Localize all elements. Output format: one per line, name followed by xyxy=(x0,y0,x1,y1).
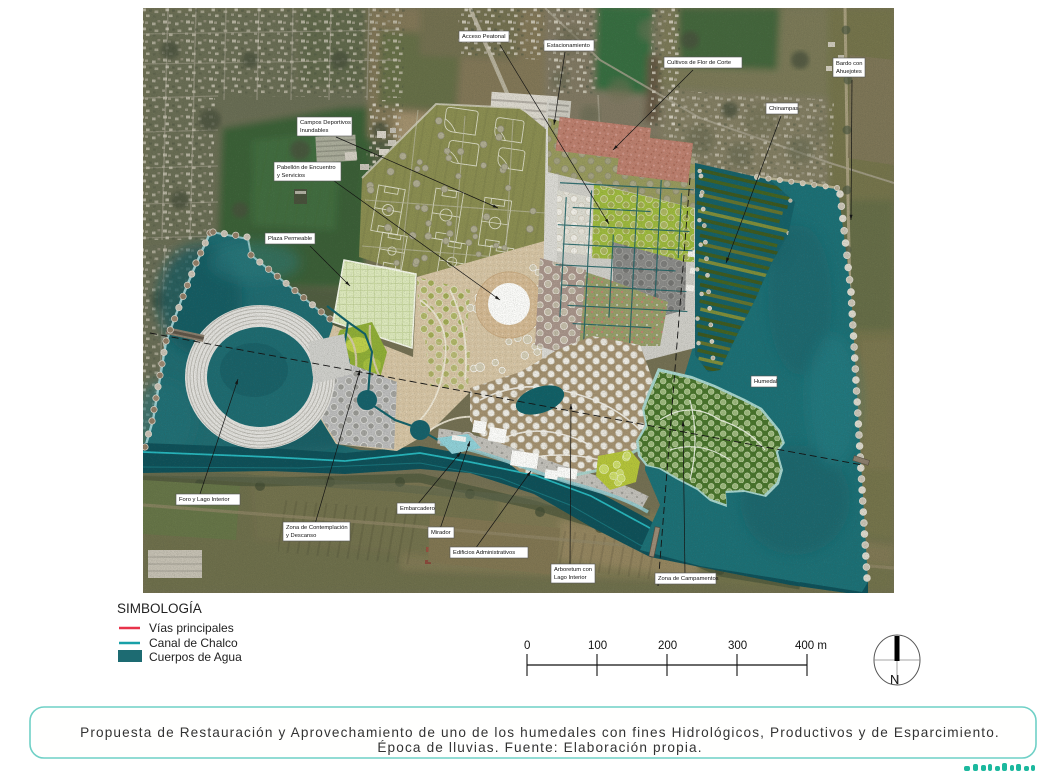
svg-text:Cultivos de Flor de Corte: Cultivos de Flor de Corte xyxy=(667,60,731,66)
svg-text:Edificios Administrativos: Edificios Administrativos xyxy=(453,550,515,556)
svg-text:Humedal: Humedal xyxy=(754,379,777,385)
svg-text:Chinampas: Chinampas xyxy=(769,106,798,112)
svg-text:Campos Deportivos: Campos Deportivos xyxy=(300,120,351,126)
svg-text:Lago Interior: Lago Interior xyxy=(554,575,587,581)
svg-text:Arboretum con: Arboretum con xyxy=(554,567,592,573)
svg-text:200: 200 xyxy=(658,640,677,652)
svg-text:100: 100 xyxy=(588,640,607,652)
svg-text:Zona de Contemplación: Zona de Contemplación xyxy=(286,525,348,531)
svg-text:Inundables: Inundables xyxy=(300,128,328,134)
svg-text:Estacionamiento: Estacionamiento xyxy=(547,43,590,49)
svg-text:SIMBOLOGÍA: SIMBOLOGÍA xyxy=(117,601,202,616)
svg-text:Zona de Campamentos: Zona de Campamentos xyxy=(658,576,719,582)
svg-text:Mirador: Mirador xyxy=(431,530,451,536)
svg-text:0: 0 xyxy=(524,640,530,652)
svg-text:Plaza Permeable: Plaza Permeable xyxy=(268,236,312,242)
svg-text:Cuerpos de Agua: Cuerpos de Agua xyxy=(149,650,242,664)
svg-text:Pabellón de Encuentro: Pabellón de Encuentro xyxy=(277,165,336,171)
svg-text:N: N xyxy=(890,672,899,687)
svg-text:400 m: 400 m xyxy=(795,640,827,652)
svg-text:y Servicios: y Servicios xyxy=(277,173,305,179)
svg-text:Embarcadero: Embarcadero xyxy=(400,506,435,512)
svg-text:Propuesta de Restauración y Ap: Propuesta de Restauración y Aprovechamie… xyxy=(80,725,1000,740)
svg-text:Bardo con: Bardo con xyxy=(836,61,862,67)
svg-text:Foro y Lago Interior: Foro y Lago Interior xyxy=(179,497,230,503)
svg-text:300: 300 xyxy=(728,640,747,652)
svg-text:Acceso Peatonal: Acceso Peatonal xyxy=(462,34,506,40)
svg-text:Ahuejotes: Ahuejotes xyxy=(836,69,862,75)
svg-text:Vías principales: Vías principales xyxy=(149,621,234,635)
svg-text:y Descanso: y Descanso xyxy=(286,533,316,539)
svg-text:Canal de Chalco: Canal de Chalco xyxy=(149,636,238,650)
svg-text:Época de lluvias. Fuente: Elab: Época de lluvias. Fuente: Elaboración pr… xyxy=(377,740,702,755)
